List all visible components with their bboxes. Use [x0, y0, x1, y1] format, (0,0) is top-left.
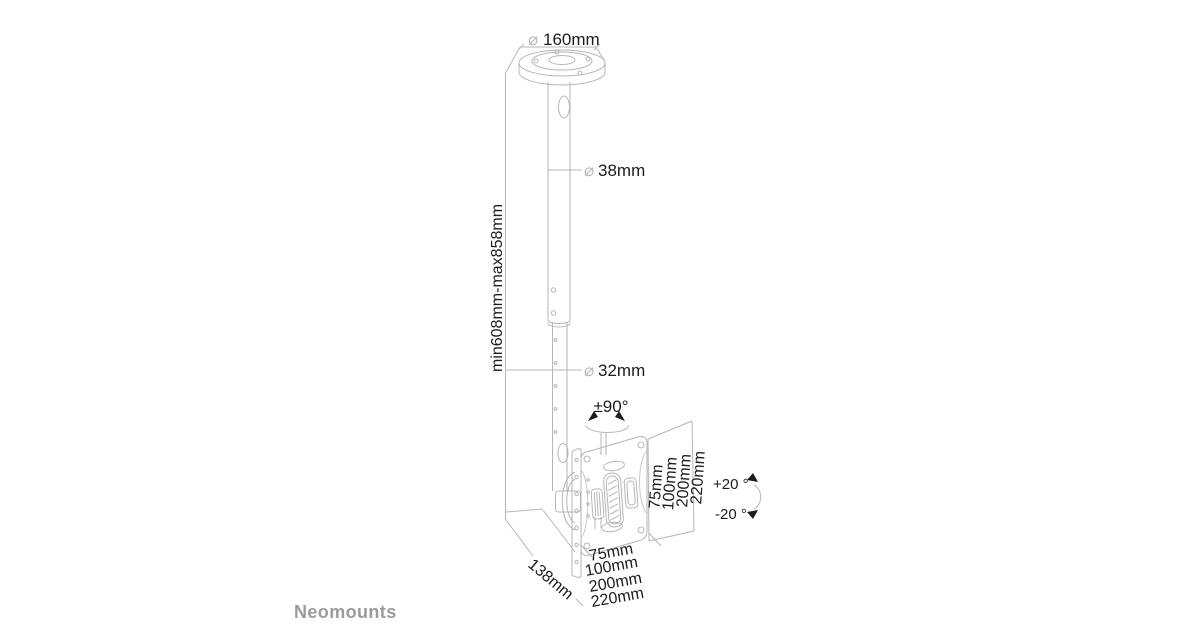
dim-depth: 138mm [524, 556, 576, 603]
vesa-left-slot [591, 489, 604, 520]
lower-pole [553, 323, 569, 491]
dim-swivel: ±90° [593, 397, 628, 416]
technical-diagram: ⌀ 160mm ⌀ 38mm ⌀ 32mm min608mm-max858mm … [0, 0, 1200, 630]
product-diagram-page: ⌀ 160mm ⌀ 38mm ⌀ 32mm min608mm-max858mm … [0, 0, 1200, 630]
dim-tilt-up: +20 ° [713, 476, 749, 493]
vesa-plate [581, 437, 647, 556]
vesa-centre-slot [603, 472, 624, 527]
dimension-labels: ⌀ 160mm ⌀ 38mm ⌀ 32mm min608mm-max858mm … [489, 30, 749, 611]
vesa-right-slot [624, 478, 638, 509]
mount-bracket [556, 449, 582, 577]
tilt-arrow-up-icon [747, 473, 758, 482]
dim-height-range: min608mm-max858mm [489, 204, 506, 372]
dim-tilt-down: -20 ° [715, 506, 747, 523]
dim-lower-pole: 32mm [598, 361, 645, 380]
dim-vesa-vertical-220: 220mm [688, 450, 709, 504]
neomounts-logo: Neomounts [294, 602, 397, 622]
tilt-arrow-down-icon [747, 510, 758, 519]
diameter-symbol: ⌀ [584, 361, 594, 380]
dim-upper-pole: 38mm [598, 161, 645, 180]
dim-ceiling-plate: 160mm [543, 30, 600, 49]
diameter-symbol: ⌀ [584, 161, 594, 180]
ceiling-plate [519, 50, 605, 85]
upper-pole [548, 82, 570, 327]
diameter-symbol: ⌀ [528, 30, 538, 49]
